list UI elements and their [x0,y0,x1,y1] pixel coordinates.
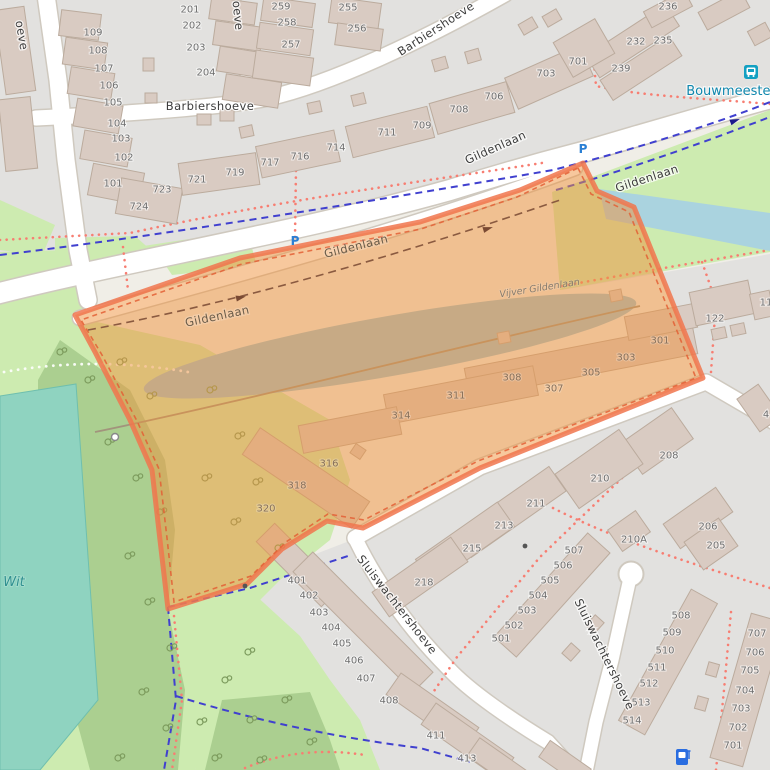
parking-icon: P [579,142,588,156]
house-number: 108 [88,46,107,57]
house-number: 232 [626,37,645,48]
bus-stop-icon [744,65,758,79]
parking-icon: P [291,234,300,248]
house-number: 504 [528,591,547,602]
house-number: 503 [517,606,536,617]
house-number: 714 [326,143,345,154]
house-number: 510 [655,646,674,657]
house-number: 709 [412,121,431,132]
house-number: 122 [705,314,724,325]
house-number: 707 [747,629,766,640]
transit-stop-label: Bouwmeester [686,84,770,99]
house-number: 704 [735,686,754,697]
house-number: 106 [99,81,118,92]
house-number: 107 [94,64,113,75]
house-number: 717 [260,158,279,169]
house-number: 514 [622,716,641,727]
house-number: 204 [196,68,215,79]
house-number: 303 [616,353,635,364]
house-number: 258 [277,18,296,29]
house-number: 308 [502,373,521,384]
building [730,323,746,337]
house-number: 502 [504,621,523,632]
house-number: 236 [658,2,677,13]
house-number: 201 [180,5,199,16]
house-number: 408 [379,696,398,707]
map-svg: 1091081071061051041031021012012022032042… [0,0,770,770]
house-number: 11 [760,298,770,309]
house-number: 210A [621,535,647,546]
house-number: 210 [590,474,609,485]
house-number: 401 [287,576,306,587]
house-number: 257 [281,40,300,51]
house-number: 307 [544,384,563,395]
house-number: 411 [426,731,445,742]
house-number: 701 [723,741,742,752]
building [711,327,727,341]
house-number: 512 [639,679,658,690]
turning-circle [620,563,642,585]
house-number: 507 [564,546,583,557]
house-number: 708 [449,105,468,116]
house-number: 259 [271,2,290,13]
house-number: 705 [740,666,759,677]
street-name-label: Barbiershoeve [166,99,254,113]
house-number: 703 [731,704,750,715]
house-number: 320 [256,504,275,515]
house-number: 314 [391,411,410,422]
house-number: 109 [83,28,102,39]
building [143,58,154,71]
house-number: 402 [299,591,318,602]
building [145,93,157,103]
house-number: 235 [653,36,672,47]
house-number: 205 [706,541,725,552]
house-number: 703 [536,69,555,80]
house-number: 701 [568,57,587,68]
bollard-icon [523,544,528,549]
house-number: 501 [491,634,510,645]
house-number: 723 [152,185,171,196]
building [351,93,366,107]
house-number: 508 [671,611,690,622]
gate-icon [112,434,119,441]
house-number: 719 [225,168,244,179]
building [197,114,211,125]
house-number: 301 [650,336,669,347]
house-number: 208 [659,451,678,462]
house-number: 4 [763,410,769,421]
building [307,101,322,114]
house-number: 311 [446,391,465,402]
house-number: 218 [414,578,433,589]
house-number: 413 [457,754,476,765]
house-number: 318 [287,481,306,492]
building [239,125,254,138]
house-number: 104 [107,119,126,130]
house-number: 211 [526,499,545,510]
house-number: 716 [290,152,309,163]
house-number: 406 [344,656,363,667]
house-number: 706 [745,648,764,659]
house-number: 511 [647,663,666,674]
house-number: 506 [553,561,572,572]
house-number: 403 [309,608,328,619]
house-number: 203 [186,43,205,54]
house-number: 256 [347,24,366,35]
house-number: 206 [698,522,717,533]
house-number: 721 [187,175,206,186]
house-number: 102 [114,153,133,164]
house-number: 105 [103,98,122,109]
house-number: 702 [728,723,747,734]
house-number: 103 [111,134,130,145]
house-number: 711 [377,128,396,139]
bollard-icon [243,584,248,589]
house-number: 316 [319,459,338,470]
house-number: 215 [462,544,481,555]
house-number: 213 [494,521,513,532]
house-number: 407 [356,674,375,685]
house-number: 202 [182,21,201,32]
house-number: 706 [484,92,503,103]
house-number: 405 [332,639,351,650]
water-name-label: Wit [3,575,25,590]
house-number: 509 [662,628,681,639]
house-number: 255 [338,3,357,14]
house-number: 404 [321,623,340,634]
house-number: 305 [581,368,600,379]
map-canvas[interactable]: 1091081071061051041031021012012022032042… [0,0,770,770]
house-number: 101 [103,179,122,190]
house-number: 724 [129,202,148,213]
house-number: 239 [611,64,630,75]
house-number: 505 [540,576,559,587]
